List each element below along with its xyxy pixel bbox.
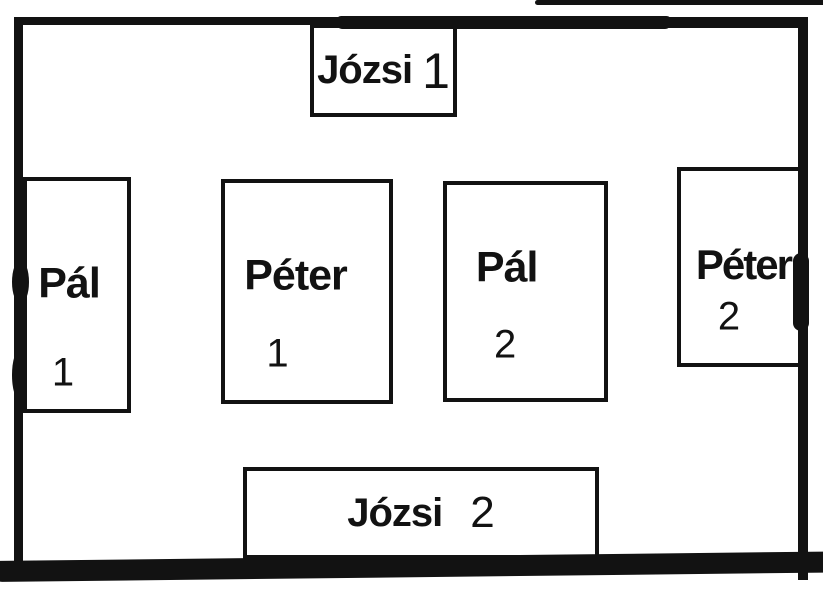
box-number: 1 (52, 350, 74, 395)
box-peter-2: Péter 2 (677, 167, 805, 367)
box-pal-2: Pál 2 (443, 181, 608, 402)
frame-top-right-stroke (600, 17, 808, 28)
box-label: Józsi (347, 491, 442, 536)
box-number: 2 (494, 322, 516, 367)
box-label: Pál (38, 259, 100, 308)
box-label: Péter (696, 241, 791, 289)
box-number: 2 (470, 488, 494, 538)
top-edge-marker-smudge (535, 0, 823, 5)
box-number: 1 (266, 332, 288, 377)
box-peter-1: Péter 1 (221, 179, 393, 404)
box-label: Péter (244, 252, 347, 301)
box-jozsi-2: Józsi 2 (243, 467, 599, 559)
box-label: Józsi (317, 48, 412, 93)
box-number: 2 (718, 294, 740, 339)
box-label: Pál (476, 244, 538, 293)
box-jozsi-1: Józsi 1 (310, 24, 457, 117)
box-pal-1: Pál 1 (23, 177, 131, 413)
box-number: 1 (422, 42, 450, 100)
room-plan-diagram: Józsi 1 Pál 1 Péter 1 Pál 2 Péter 2 Józs… (0, 0, 823, 592)
